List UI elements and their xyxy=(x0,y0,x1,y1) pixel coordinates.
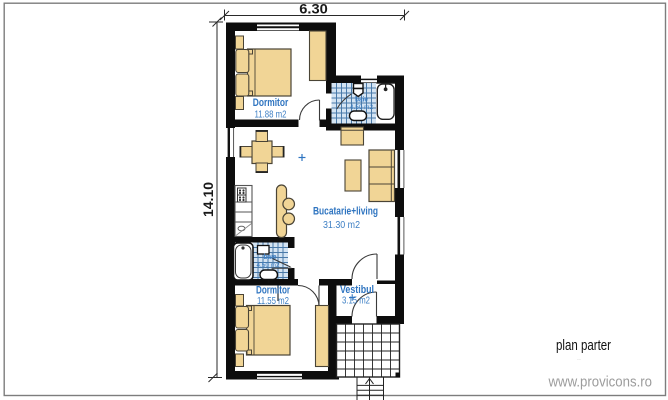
svg-text:6.30: 6.30 xyxy=(299,1,328,17)
svg-text:www.provicons.ro: www.provicons.ro xyxy=(548,374,652,391)
svg-text:baie: baie xyxy=(355,97,368,104)
svg-text:3.15 m2: 3.15 m2 xyxy=(342,295,370,307)
svg-text:..: .. xyxy=(577,355,581,362)
svg-text:14.10: 14.10 xyxy=(200,182,216,217)
svg-text:4.50 m2: 4.50 m2 xyxy=(350,104,373,111)
svg-text:31.30 m2: 31.30 m2 xyxy=(323,219,360,231)
svg-text:Dormitor: Dormitor xyxy=(253,97,289,109)
svg-text:plan parter: plan parter xyxy=(556,338,611,354)
svg-text:11.88 m2: 11.88 m2 xyxy=(255,109,287,121)
svg-text:Bucatarie+living: Bucatarie+living xyxy=(313,206,378,218)
